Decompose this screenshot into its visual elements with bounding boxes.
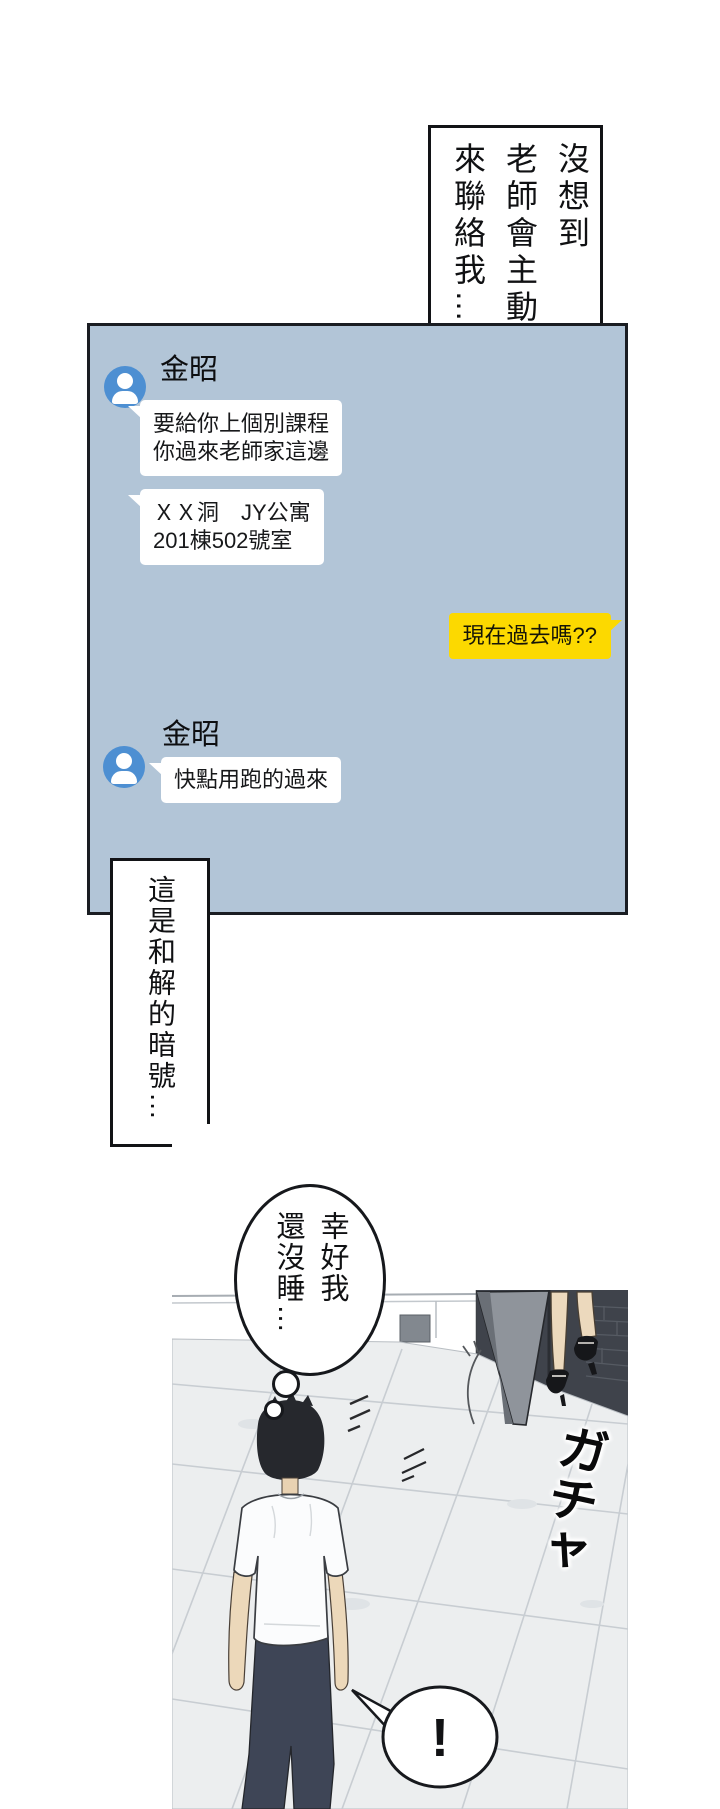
chat-bubble-self: 現在過去嗎?? (449, 613, 611, 659)
thought-trail-dot (264, 1400, 284, 1420)
person-icon (117, 373, 133, 389)
thought-balloon-text: 幸好我 還沒睡… (266, 1187, 354, 1373)
chat-bubble-line: 現在過去嗎?? (463, 623, 597, 649)
exclamation-text: ! (431, 1708, 449, 1768)
thought-trail-dot (272, 1370, 300, 1398)
chat-bubble-line: 快點用跑的過來 (174, 766, 328, 794)
chat-bubble: 快點用跑的過來 (161, 757, 341, 803)
chat-bubble-line: 201棟502號室 (153, 527, 311, 555)
narration-line: 這是和解的暗號… (113, 875, 207, 1136)
person-icon-body (112, 391, 138, 404)
person-icon (116, 753, 132, 769)
chat-panel: 金昭 要給你上個別課程 你過來老師家這邊 ＸＸ洞 JY公寓 201棟502號室 … (87, 323, 628, 915)
narration-line: 來聯絡我… (442, 142, 494, 336)
narration-box-top: 沒想到 老師會主動 來聯絡我… (428, 125, 603, 347)
narration-line: 沒想到 (546, 142, 598, 336)
chat-bubble-line: ＸＸ洞 JY公寓 (153, 499, 311, 527)
chat-bubble-line: 要給你上個別課程 (153, 410, 329, 438)
chat-bubble-line: 你過來老師家這邊 (153, 438, 329, 466)
wall-plinth (400, 1315, 430, 1342)
narration-line: 老師會主動 (494, 142, 546, 336)
thought-balloon: 幸好我 還沒睡… (234, 1184, 386, 1376)
person-icon-body (111, 771, 137, 784)
art-panel: ! ガチャ 幸好我 還沒睡… (172, 1124, 628, 1809)
comic-page: { "page": { "background": "#ffffff", "na… (0, 0, 720, 1809)
thought-line: 還沒睡… (266, 1211, 310, 1373)
avatar (103, 746, 145, 788)
chat-bubble: ＸＸ洞 JY公寓 201棟502號室 (140, 489, 324, 565)
thought-line: 幸好我 (310, 1211, 354, 1373)
sender-name: 金昭 (160, 346, 218, 388)
neck (282, 1478, 298, 1494)
sender-name: 金昭 (162, 711, 220, 753)
narration-box-mid: 這是和解的暗號… (110, 858, 210, 1147)
chat-bubble: 要給你上個別課程 你過來老師家這邊 (140, 400, 342, 476)
